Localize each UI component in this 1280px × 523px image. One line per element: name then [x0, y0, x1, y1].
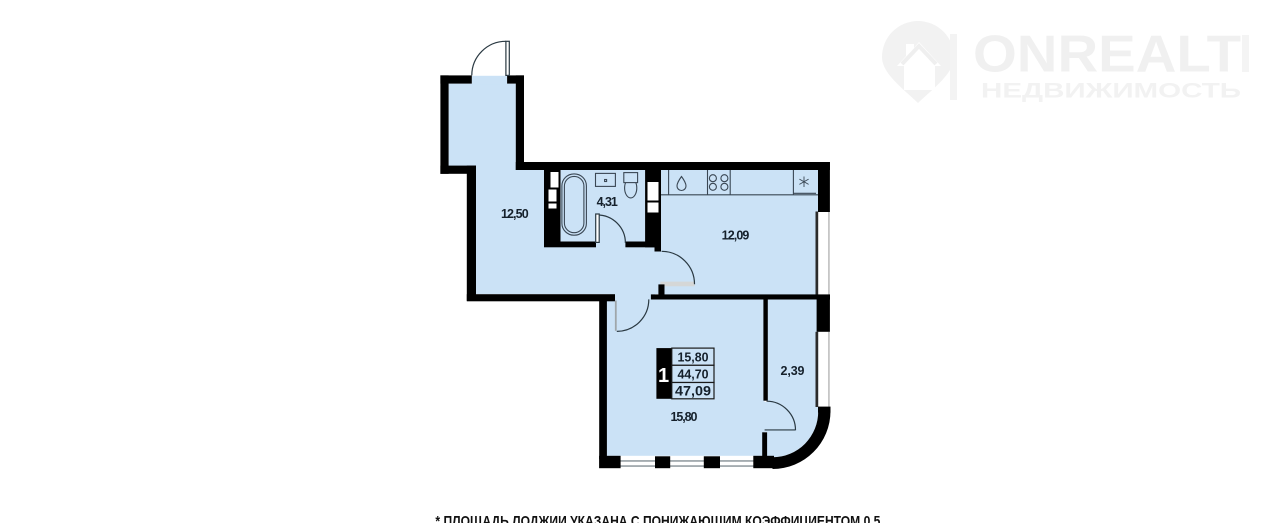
svg-text:НЕДВИЖИМОСТЬ: НЕДВИЖИМОСТЬ [981, 78, 1241, 102]
svg-text:47,09: 47,09 [675, 383, 711, 399]
svg-text:15,80: 15,80 [678, 351, 709, 365]
svg-text:ONREALT: ONREALT [973, 26, 1241, 84]
svg-text:2,39: 2,39 [781, 364, 805, 378]
svg-text:15,80: 15,80 [671, 410, 698, 424]
svg-text:4,31: 4,31 [597, 195, 618, 209]
svg-text:* ПЛОЩАДЬ ЛОДЖИИ УКАЗАНА С ПОН: * ПЛОЩАДЬ ЛОДЖИИ УКАЗАНА С ПОНИЖАЮЩИМ КО… [435, 513, 880, 523]
svg-text:1: 1 [658, 365, 669, 387]
svg-text:12,50: 12,50 [501, 207, 529, 221]
svg-text:44,70: 44,70 [678, 368, 709, 382]
svg-text:12,09: 12,09 [722, 229, 750, 243]
